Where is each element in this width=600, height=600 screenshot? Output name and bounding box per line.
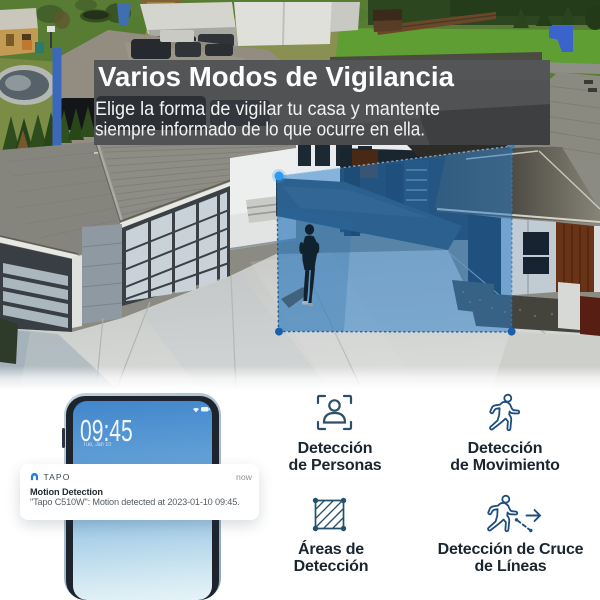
svg-text:Elige la forma de vigilar tu c: Elige la forma de vigilar tu casa y mant…: [95, 98, 440, 120]
svg-text:Varios Modos de Vigilancia: Varios Modos de Vigilancia: [98, 61, 454, 92]
svg-text:siempre informado de lo que oc: siempre informado de lo que ocurre en el…: [95, 119, 425, 141]
